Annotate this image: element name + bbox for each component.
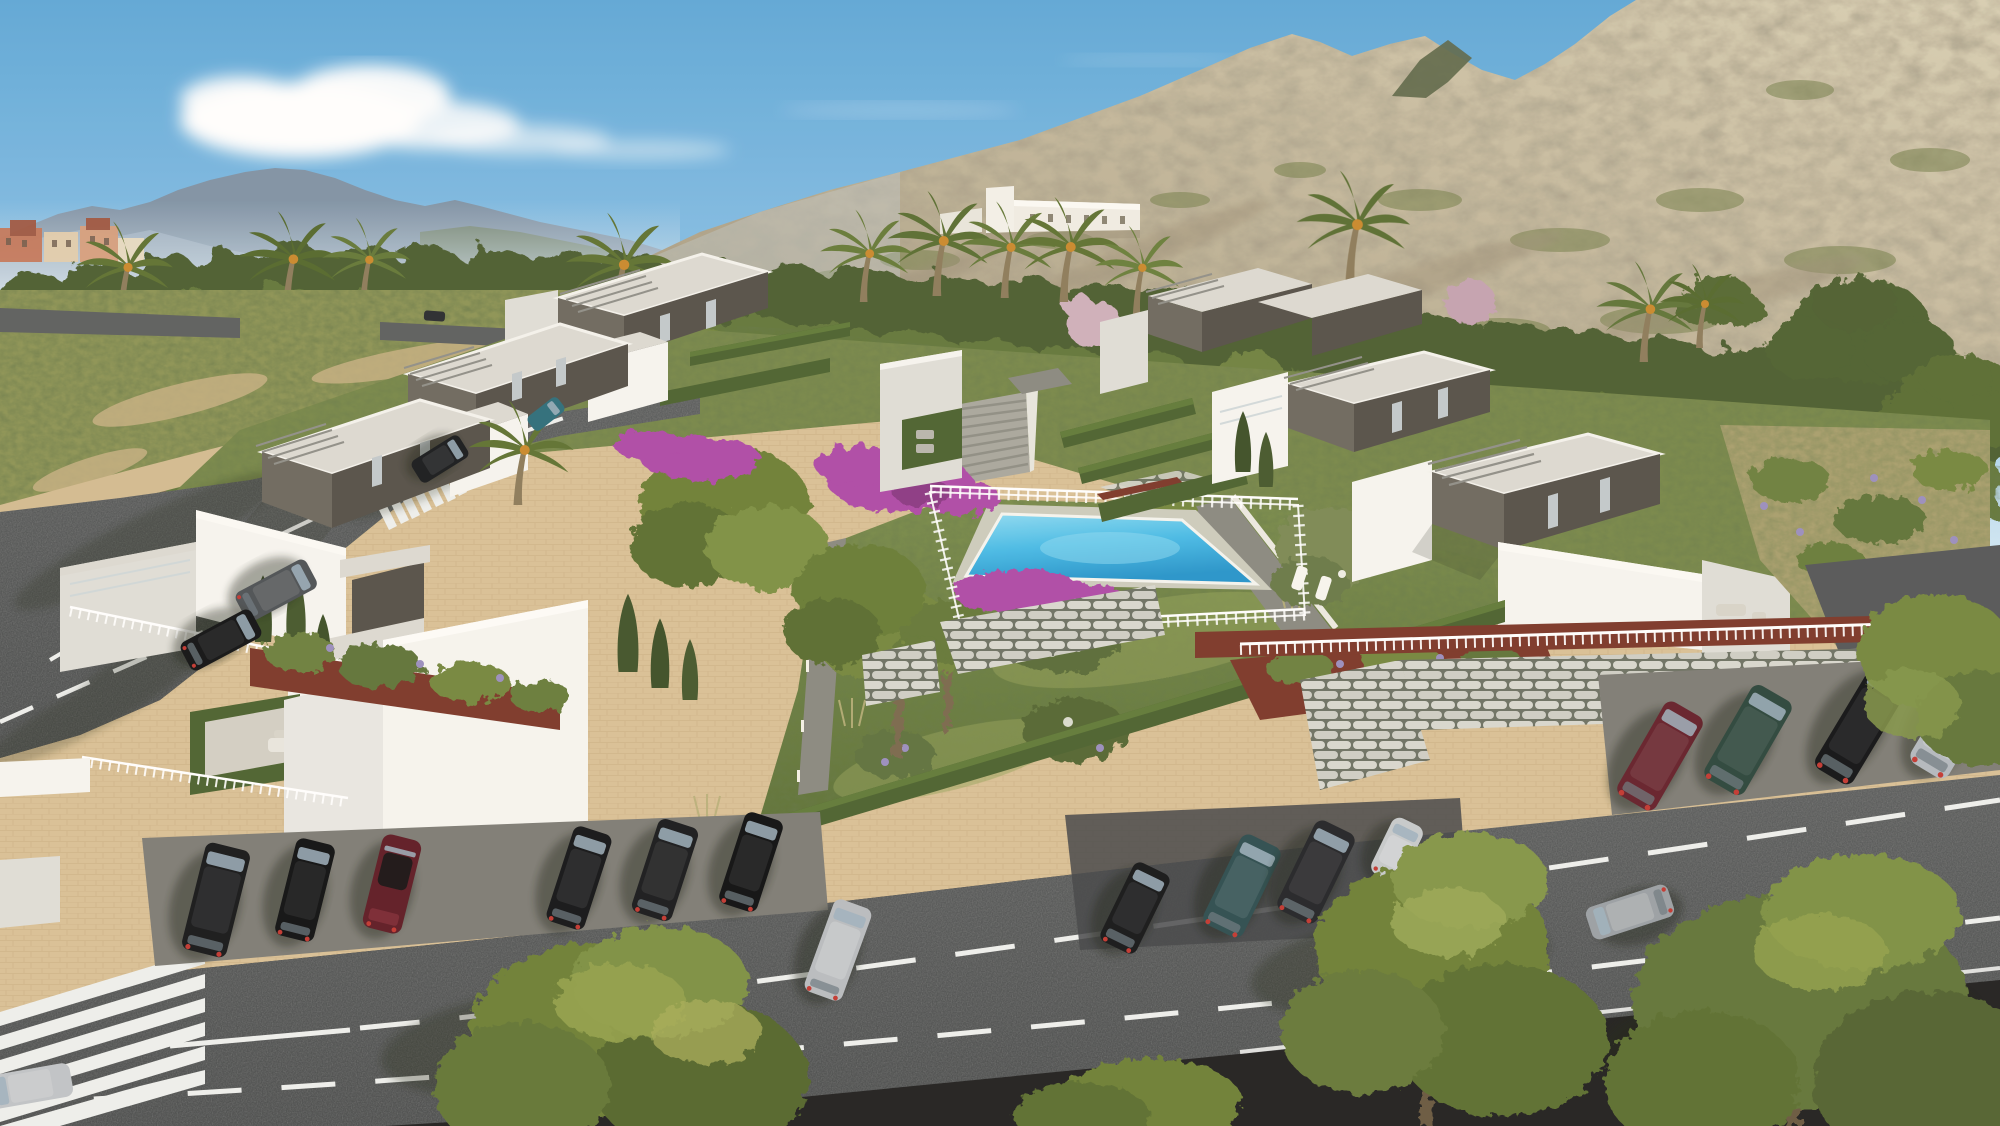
render-canvas <box>0 0 2000 1126</box>
foreground-trees <box>0 0 2000 1126</box>
villa-development-render <box>0 0 2000 1126</box>
warm-light-grade <box>0 0 2000 1126</box>
